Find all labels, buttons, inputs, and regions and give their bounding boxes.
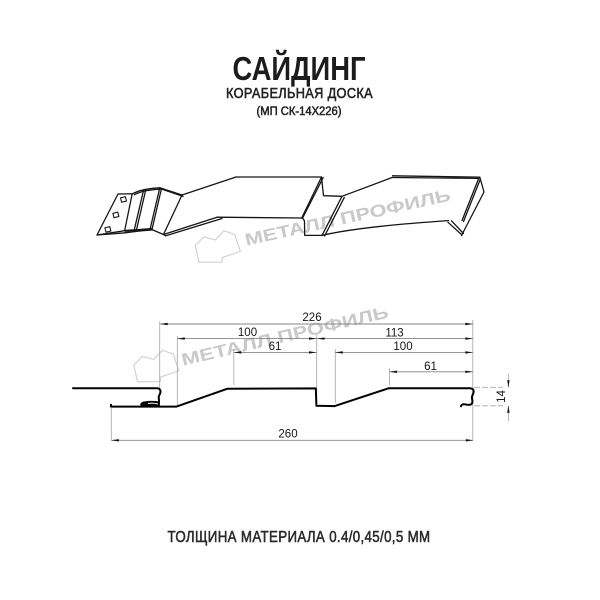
svg-text:226: 226: [302, 312, 321, 324]
svg-text:260: 260: [278, 428, 297, 440]
svg-text:100: 100: [238, 327, 257, 339]
svg-text:(МП СК-14Х226): (МП СК-14Х226): [257, 106, 342, 118]
svg-text:113: 113: [385, 327, 403, 339]
svg-text:14: 14: [496, 390, 508, 403]
svg-text:КОРАБЕЛЬНАЯ ДОСКА: КОРАБЕЛЬНАЯ ДОСКА: [226, 86, 373, 102]
svg-text:САЙДИНГ: САЙДИНГ: [233, 49, 366, 87]
svg-text:ТОЛЩИНА МАТЕРИАЛА 0.4/0,45/0,5: ТОЛЩИНА МАТЕРИАЛА 0.4/0,45/0,5 ММ: [168, 529, 431, 546]
svg-text:61: 61: [424, 361, 437, 373]
svg-text:МЕТАЛЛ ПРОФИЛЬ: МЕТАЛЛ ПРОФИЛЬ: [180, 303, 391, 370]
svg-text:61: 61: [269, 341, 282, 353]
svg-text:100: 100: [393, 341, 412, 353]
